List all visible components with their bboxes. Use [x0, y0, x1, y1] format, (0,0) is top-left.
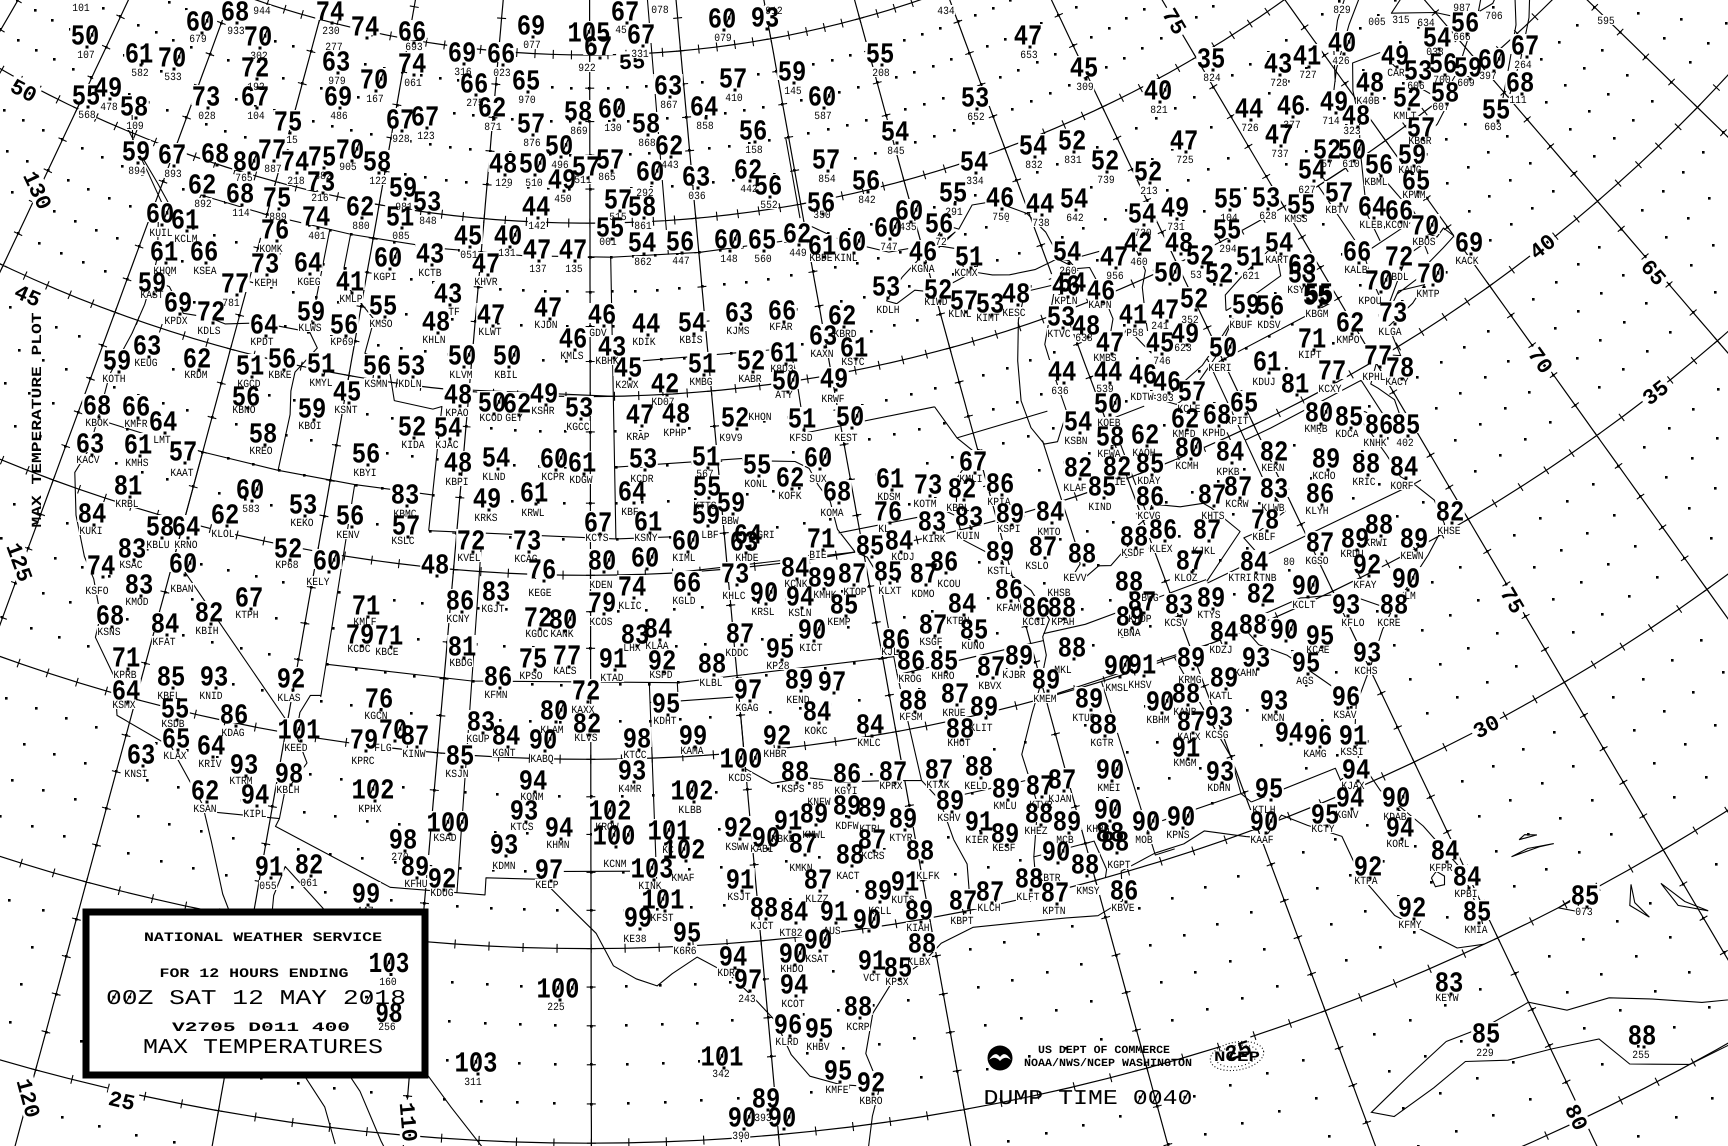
svg-text:87: 87	[726, 619, 755, 652]
svg-text:KBRO: KBRO	[859, 1096, 883, 1108]
svg-text:KABR: KABR	[738, 374, 762, 386]
svg-text:KLWT: KLWT	[478, 327, 502, 339]
svg-text:90: 90	[529, 725, 558, 758]
svg-text:KRIC: KRIC	[1352, 477, 1376, 489]
svg-text:KPHL: KPHL	[1362, 372, 1385, 384]
svg-text:50: 50	[1154, 258, 1183, 291]
svg-text:KSJN: KSJN	[445, 769, 468, 781]
svg-text:KESF: KESF	[992, 843, 1015, 855]
svg-text:91: 91	[599, 644, 628, 677]
svg-text:KSJT: KSJT	[727, 892, 751, 904]
svg-text:KBPI: KBPI	[445, 477, 468, 489]
svg-text:714: 714	[1322, 116, 1340, 128]
svg-text:213: 213	[1140, 186, 1157, 198]
svg-text:KDFW: KDFW	[835, 821, 859, 833]
svg-text:KLNL: KLNL	[948, 309, 971, 321]
svg-text:KLVS: KLVS	[574, 733, 598, 745]
svg-text:70: 70	[158, 43, 187, 76]
svg-text:449: 449	[789, 248, 806, 260]
svg-text:88: 88	[1071, 850, 1100, 883]
svg-text:KBDE: KBDE	[809, 253, 833, 265]
svg-text:67: 67	[158, 140, 187, 173]
svg-text:737: 737	[1271, 149, 1288, 161]
svg-text:60: 60	[808, 82, 837, 115]
svg-text:KRSL: KRSL	[751, 607, 774, 619]
svg-text:94: 94	[241, 780, 270, 813]
svg-text:70: 70	[1417, 259, 1446, 292]
svg-text:KLFK: KLFK	[916, 871, 940, 883]
svg-text:KGAG: KGAG	[735, 703, 758, 715]
svg-text:666: 666	[1453, 32, 1470, 44]
svg-text:727: 727	[1299, 70, 1316, 82]
svg-text:KSAT: KSAT	[805, 954, 829, 966]
svg-text:51: 51	[1236, 242, 1265, 275]
svg-text:KCHS: KCHS	[1354, 666, 1378, 678]
svg-text:92: 92	[724, 813, 753, 846]
svg-text:56: 56	[1256, 291, 1285, 324]
svg-text:KDMO: KDMO	[911, 589, 935, 601]
svg-text:KUIN: KUIN	[956, 531, 979, 543]
svg-text:53: 53	[413, 187, 442, 220]
svg-text:KLEB: KLEB	[1359, 220, 1383, 232]
svg-text:868: 868	[638, 138, 655, 150]
svg-text:KMLS: KMLS	[560, 351, 584, 363]
svg-text:KRDM: KRDM	[184, 370, 207, 382]
svg-text:KPIT: KPIT	[1225, 416, 1249, 428]
svg-text:KMGM: KMGM	[1173, 758, 1196, 770]
svg-text:130: 130	[604, 123, 621, 135]
svg-text:109: 109	[126, 121, 143, 133]
svg-text:609: 609	[1457, 78, 1474, 90]
svg-text:KPSX: KPSX	[885, 977, 909, 989]
svg-text:KTAD: KTAD	[600, 673, 624, 685]
svg-text:073: 073	[1575, 907, 1592, 919]
svg-text:89: 89	[889, 804, 918, 837]
svg-text:86: 86	[930, 547, 959, 580]
svg-text:52: 52	[1205, 259, 1234, 292]
svg-text:87: 87	[1193, 515, 1222, 548]
svg-text:84: 84	[1390, 452, 1419, 485]
svg-text:KP69: KP69	[330, 337, 353, 349]
svg-text:52: 52	[1091, 146, 1120, 179]
svg-text:40: 40	[1144, 76, 1173, 109]
svg-text:KEKO: KEKO	[290, 518, 314, 530]
svg-text:15: 15	[286, 135, 298, 147]
svg-text:KSNS: KSNS	[97, 627, 121, 639]
svg-text:62: 62	[188, 170, 217, 203]
svg-text:342: 342	[712, 1069, 729, 1081]
svg-text:80: 80	[1283, 557, 1295, 569]
svg-text:726: 726	[1241, 123, 1258, 135]
svg-text:610: 610	[1342, 159, 1359, 171]
svg-text:410: 410	[725, 93, 742, 105]
svg-text:73: 73	[914, 470, 943, 503]
svg-text:638: 638	[1075, 333, 1092, 345]
svg-text:54: 54	[960, 147, 989, 180]
svg-text:74: 74	[351, 12, 380, 45]
svg-text:028: 028	[198, 111, 215, 123]
svg-text:294: 294	[1219, 244, 1237, 256]
svg-text:63: 63	[654, 71, 683, 104]
svg-text:KSHV: KSHV	[937, 813, 961, 825]
svg-text:887: 887	[264, 164, 281, 176]
svg-text:747: 747	[880, 242, 897, 254]
svg-text:89: 89	[858, 793, 887, 826]
svg-text:KBLF: KBLF	[1252, 532, 1275, 544]
svg-text:44: 44	[1026, 189, 1055, 222]
svg-text:BIE: BIE	[809, 550, 827, 562]
svg-text:KACV: KACV	[76, 455, 100, 467]
svg-text:51: 51	[788, 404, 817, 437]
svg-text:862: 862	[634, 257, 651, 269]
svg-text:KONL: KONL	[744, 479, 767, 491]
svg-text:50: 50	[1209, 333, 1238, 366]
svg-text:944: 944	[253, 6, 271, 18]
svg-text:88: 88	[906, 836, 935, 869]
svg-text:KHON: KHON	[748, 412, 771, 424]
svg-text:KREO: KREO	[249, 446, 273, 458]
svg-text:NATIONAL WEATHER SERVICE: NATIONAL WEATHER SERVICE	[144, 930, 382, 945]
svg-text:KESC: KESC	[1002, 308, 1026, 320]
svg-text:KEYW: KEYW	[1435, 993, 1459, 1005]
svg-text:KLRD: KLRD	[775, 1037, 799, 1049]
svg-text:KBVE: KBVE	[1111, 903, 1135, 915]
svg-text:60: 60	[708, 4, 737, 37]
svg-text:86: 86	[1136, 482, 1165, 515]
svg-text:KHSV: KHSV	[1128, 680, 1152, 692]
svg-text:87: 87	[949, 886, 978, 919]
svg-text:KSDF: KSDF	[1121, 548, 1144, 560]
svg-text:60: 60	[169, 549, 198, 582]
svg-text:KIDA: KIDA	[401, 440, 425, 452]
svg-text:933: 933	[227, 26, 244, 38]
svg-text:MOB: MOB	[1135, 835, 1153, 847]
svg-text:73: 73	[251, 249, 280, 282]
svg-text:VCT: VCT	[863, 973, 881, 985]
svg-text:148: 148	[720, 254, 737, 266]
svg-text:583: 583	[242, 504, 259, 516]
svg-text:KUKI: KUKI	[79, 526, 102, 538]
svg-text:87: 87	[804, 865, 833, 898]
svg-text:KBIH: KBIH	[195, 626, 218, 638]
svg-text:103: 103	[455, 1048, 498, 1081]
svg-text:KBYI: KBYI	[353, 468, 376, 480]
svg-text:905: 905	[339, 162, 356, 174]
svg-text:460: 460	[1130, 257, 1147, 269]
svg-text:KOTH: KOTH	[102, 374, 125, 386]
svg-text:845: 845	[887, 146, 904, 158]
svg-text:KLAF: KLAF	[1063, 483, 1086, 495]
svg-text:628: 628	[1259, 211, 1276, 223]
svg-text:64: 64	[294, 248, 323, 281]
svg-text:61: 61	[125, 39, 154, 72]
svg-text:114: 114	[232, 208, 250, 220]
svg-text:MAX TEMPERATURE PLOT: MAX TEMPERATURE PLOT	[30, 313, 46, 528]
svg-text:54: 54	[482, 443, 511, 476]
svg-text:101: 101	[72, 3, 90, 15]
svg-text:44: 44	[1048, 357, 1077, 390]
svg-text:76: 76	[528, 555, 557, 588]
svg-text:KBOI: KBOI	[298, 421, 321, 433]
svg-text:KHVR: KHVR	[474, 277, 498, 289]
svg-text:230: 230	[322, 26, 339, 38]
svg-text:94: 94	[1275, 718, 1304, 751]
svg-text:KABI: KABI	[750, 844, 773, 856]
svg-text:79: 79	[588, 588, 617, 621]
svg-text:61: 61	[150, 237, 179, 270]
svg-text:KRWL: KRWL	[521, 508, 544, 520]
svg-text:KCMH: KCMH	[1175, 461, 1198, 473]
svg-text:KELD: KELD	[964, 781, 988, 793]
svg-text:KMLP: KMLP	[339, 294, 363, 306]
svg-text:55: 55	[1214, 184, 1243, 217]
svg-text:KPSO: KPSO	[519, 671, 543, 683]
svg-text:49: 49	[1171, 319, 1200, 352]
svg-text:061: 061	[404, 78, 422, 90]
svg-text:587: 587	[814, 111, 831, 123]
svg-text:061: 061	[300, 878, 318, 890]
svg-text:50: 50	[493, 341, 522, 374]
svg-text:67: 67	[411, 102, 440, 135]
svg-text:390: 390	[732, 1131, 749, 1143]
svg-text:00Z SAT 12 MAY 2018: 00Z SAT 12 MAY 2018	[106, 988, 406, 1011]
svg-text:KMEI: KMEI	[1097, 783, 1120, 795]
svg-text:KIND: KIND	[1088, 502, 1112, 514]
svg-text:73: 73	[192, 82, 221, 115]
svg-text:GEY: GEY	[505, 413, 523, 425]
svg-text:58: 58	[363, 147, 392, 180]
svg-text:47: 47	[1265, 120, 1294, 153]
svg-text:K2WX: K2WX	[615, 380, 639, 392]
svg-text:KDHN: KDHN	[1207, 783, 1230, 795]
svg-text:102: 102	[671, 776, 714, 809]
svg-text:311: 311	[464, 1077, 482, 1089]
svg-text:53: 53	[1190, 270, 1202, 282]
svg-text:48: 48	[421, 550, 450, 583]
svg-text:KFPR: KFPR	[1429, 863, 1453, 875]
svg-text:KSEA: KSEA	[193, 266, 217, 278]
svg-text:KEPH: KEPH	[254, 278, 277, 290]
svg-text:44: 44	[1235, 94, 1264, 127]
svg-text:70: 70	[360, 65, 389, 98]
svg-text:60: 60	[236, 475, 265, 508]
svg-text:KIER: KIER	[965, 835, 989, 847]
svg-text:89: 89	[1075, 684, 1104, 717]
svg-text:K9V9: K9V9	[719, 433, 742, 445]
svg-text:75: 75	[263, 183, 292, 216]
svg-text:829: 829	[1333, 5, 1350, 17]
svg-text:70: 70	[244, 22, 273, 55]
svg-text:KLOL: KLOL	[211, 529, 234, 541]
svg-text:89: 89	[1032, 665, 1061, 698]
svg-text:KLOZ: KLOZ	[1174, 573, 1198, 585]
svg-text:41: 41	[1293, 41, 1322, 74]
svg-text:KICT: KICT	[799, 643, 823, 655]
svg-text:KTVC: KTVC	[1047, 329, 1071, 341]
svg-text:KDUG: KDUG	[430, 888, 453, 900]
svg-text:KAMA: KAMA	[680, 746, 704, 758]
svg-text:58: 58	[120, 92, 149, 125]
svg-text:88: 88	[844, 992, 873, 1025]
svg-text:255: 255	[1632, 1050, 1649, 1062]
svg-text:111: 111	[1509, 95, 1527, 107]
svg-text:KSHR: KSHR	[531, 406, 555, 418]
svg-text:88: 88	[1239, 610, 1268, 643]
svg-text:90: 90	[1042, 837, 1071, 870]
svg-text:970: 970	[518, 95, 535, 107]
svg-text:47: 47	[559, 235, 588, 268]
svg-text:47: 47	[1100, 242, 1129, 275]
svg-text:90: 90	[1270, 615, 1299, 648]
svg-text:871: 871	[484, 122, 502, 134]
svg-text:867: 867	[660, 100, 677, 112]
svg-text:KGLD: KGLD	[672, 596, 696, 608]
svg-text:397: 397	[1479, 71, 1496, 83]
svg-text:59: 59	[122, 137, 151, 170]
svg-text:55: 55	[743, 450, 772, 483]
svg-text:80: 80	[588, 546, 617, 579]
svg-text:63: 63	[322, 47, 351, 80]
svg-text:KENV: KENV	[336, 530, 360, 542]
svg-text:KLAS: KLAS	[277, 693, 301, 705]
svg-text:85: 85	[812, 781, 824, 793]
svg-text:68: 68	[823, 477, 852, 510]
svg-text:KCYS: KCYS	[585, 533, 609, 545]
svg-text:KACK: KACK	[1455, 256, 1479, 268]
svg-text:256: 256	[378, 1022, 395, 1034]
svg-text:005: 005	[1368, 17, 1385, 29]
svg-text:KCLL: KCLL	[868, 906, 891, 918]
svg-text:KINL: KINL	[834, 253, 857, 265]
svg-text:KJMS: KJMS	[726, 326, 750, 338]
svg-text:56: 56	[666, 227, 695, 260]
svg-text:KCTY: KCTY	[1311, 824, 1335, 836]
svg-text:NCEP: NCEP	[1214, 1050, 1260, 1066]
svg-text:KBTV: KBTV	[1325, 205, 1349, 217]
svg-text:47: 47	[626, 400, 655, 433]
svg-text:160: 160	[379, 977, 396, 989]
svg-text:912: 912	[765, 6, 782, 18]
svg-text:KEVV: KEVV	[1063, 573, 1087, 585]
svg-text:73: 73	[721, 559, 750, 592]
svg-text:824: 824	[1203, 73, 1221, 85]
svg-text:74: 74	[618, 572, 647, 605]
svg-text:781: 781	[222, 298, 240, 310]
svg-text:KVEL: KVEL	[457, 553, 480, 565]
svg-text:055: 055	[259, 881, 276, 893]
svg-text:35: 35	[1197, 44, 1226, 77]
svg-text:46: 46	[986, 183, 1015, 216]
svg-text:KSLO: KSLO	[1025, 561, 1049, 573]
svg-text:91: 91	[1128, 650, 1157, 683]
svg-text:90: 90	[750, 578, 779, 611]
svg-text:KD07: KD07	[651, 397, 674, 409]
svg-text:679: 679	[189, 34, 206, 46]
svg-text:KHSE: KHSE	[1437, 526, 1461, 538]
svg-text:AGS: AGS	[1296, 676, 1314, 688]
svg-text:KINW: KINW	[402, 749, 426, 761]
svg-text:KFAR: KFAR	[769, 322, 793, 334]
svg-text:750: 750	[992, 212, 1009, 224]
svg-text:53: 53	[872, 272, 901, 305]
svg-text:45: 45	[615, 25, 627, 37]
svg-text:KFST: KFST	[650, 913, 674, 925]
svg-text:48: 48	[1002, 279, 1031, 312]
svg-text:50: 50	[1094, 389, 1123, 422]
svg-text:82: 82	[1436, 497, 1465, 530]
svg-text:077: 077	[523, 40, 540, 52]
svg-text:76: 76	[261, 215, 290, 248]
svg-text:60: 60	[714, 225, 743, 258]
svg-text:KSMN: KSMN	[364, 379, 387, 391]
svg-text:595: 595	[1597, 16, 1614, 28]
svg-text:225: 225	[547, 1002, 564, 1014]
svg-text:69: 69	[448, 38, 477, 71]
svg-text:79: 79	[350, 725, 379, 758]
svg-text:102: 102	[352, 775, 395, 808]
svg-text:KPRX: KPRX	[879, 781, 903, 793]
svg-text:331: 331	[631, 49, 649, 61]
svg-text:KHLC: KHLC	[722, 591, 746, 603]
svg-text:KMPO: KMPO	[1336, 335, 1360, 347]
svg-text:208: 208	[872, 68, 889, 80]
svg-text:54: 54	[1019, 131, 1048, 164]
svg-text:KEWN: KEWN	[1400, 551, 1423, 563]
svg-text:KRKS: KRKS	[474, 513, 498, 525]
svg-text:KDGW: KDGW	[569, 475, 593, 487]
svg-text:KFLO: KFLO	[1341, 618, 1365, 630]
svg-text:KDDC: KDDC	[725, 648, 749, 660]
svg-text:KSLC: KSLC	[391, 536, 415, 548]
svg-text:KDLS: KDLS	[197, 326, 221, 338]
svg-text:89: 89	[785, 665, 814, 698]
svg-text:KLND: KLND	[482, 472, 506, 484]
svg-text:KOMA: KOMA	[820, 508, 844, 520]
svg-text:US DEPT OF COMMERCE: US DEPT OF COMMERCE	[1038, 1045, 1170, 1057]
svg-text:88: 88	[1115, 567, 1144, 600]
svg-text:KSPI: KSPI	[997, 524, 1020, 536]
svg-text:KMIA: KMIA	[1464, 925, 1488, 937]
svg-text:KMSY: KMSY	[1076, 886, 1100, 898]
svg-text:KOFK: KOFK	[778, 491, 802, 503]
svg-text:87: 87	[1029, 532, 1058, 565]
svg-text:426: 426	[1332, 56, 1349, 68]
svg-text:728: 728	[1270, 78, 1287, 90]
svg-text:KABQ: KABQ	[530, 754, 554, 766]
svg-text:52: 52	[1180, 284, 1209, 317]
svg-text:67: 67	[386, 105, 415, 138]
svg-text:KHBV: KHBV	[806, 1042, 830, 1054]
svg-text:74: 74	[281, 147, 310, 180]
svg-text:56: 56	[754, 171, 783, 204]
svg-text:131: 131	[498, 248, 516, 260]
svg-text:86: 86	[1149, 515, 1178, 548]
svg-text:104: 104	[247, 111, 265, 123]
svg-text:53: 53	[629, 444, 658, 477]
svg-text:KCNM: KCNM	[603, 859, 626, 871]
svg-text:74: 74	[87, 551, 116, 584]
svg-text:85: 85	[874, 557, 903, 590]
svg-text:62: 62	[211, 500, 240, 533]
svg-text:KEED: KEED	[284, 743, 308, 755]
svg-text:89: 89	[986, 537, 1015, 570]
svg-text:49: 49	[1161, 193, 1190, 226]
svg-text:GRI: GRI	[757, 530, 774, 542]
svg-text:309: 309	[1076, 82, 1093, 94]
svg-text:57: 57	[517, 109, 546, 142]
svg-text:KDZJ: KDZJ	[1209, 645, 1232, 657]
svg-text:KLBL: KLBL	[699, 678, 722, 690]
